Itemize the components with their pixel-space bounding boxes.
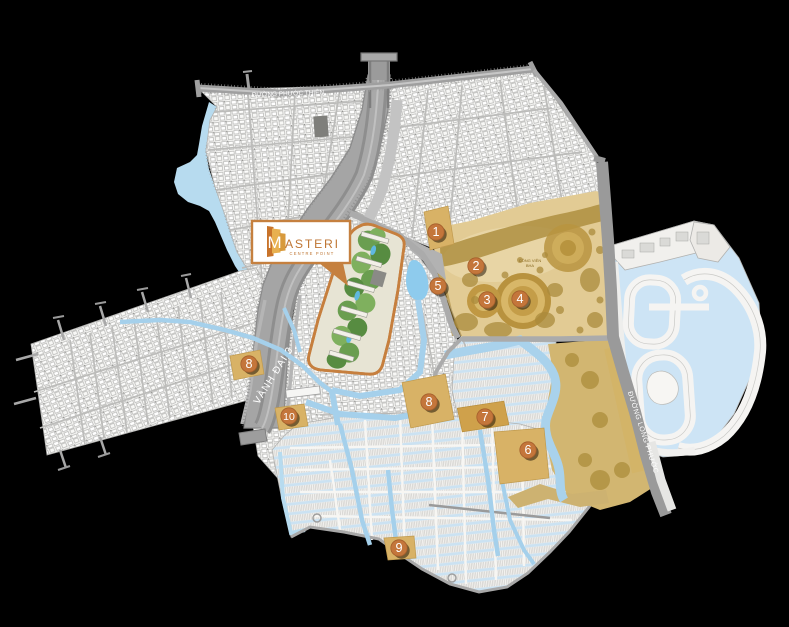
svg-text:ASTERI: ASTERI bbox=[285, 237, 340, 251]
svg-text:7: 7 bbox=[481, 410, 488, 424]
svg-text:M: M bbox=[268, 233, 282, 252]
svg-text:3: 3 bbox=[483, 293, 490, 307]
svg-text:5: 5 bbox=[434, 279, 441, 293]
svg-text:1: 1 bbox=[432, 225, 439, 239]
svg-text:2: 2 bbox=[472, 259, 479, 273]
svg-text:6: 6 bbox=[524, 443, 531, 457]
svg-text:BHA: BHA bbox=[526, 263, 535, 268]
svg-text:4: 4 bbox=[516, 292, 523, 306]
svg-text:10: 10 bbox=[283, 411, 295, 423]
svg-text:CENTRE POINT: CENTRE POINT bbox=[290, 251, 335, 256]
svg-text:8: 8 bbox=[245, 357, 252, 371]
svg-text:9: 9 bbox=[395, 541, 402, 555]
svg-text:8: 8 bbox=[425, 395, 432, 409]
